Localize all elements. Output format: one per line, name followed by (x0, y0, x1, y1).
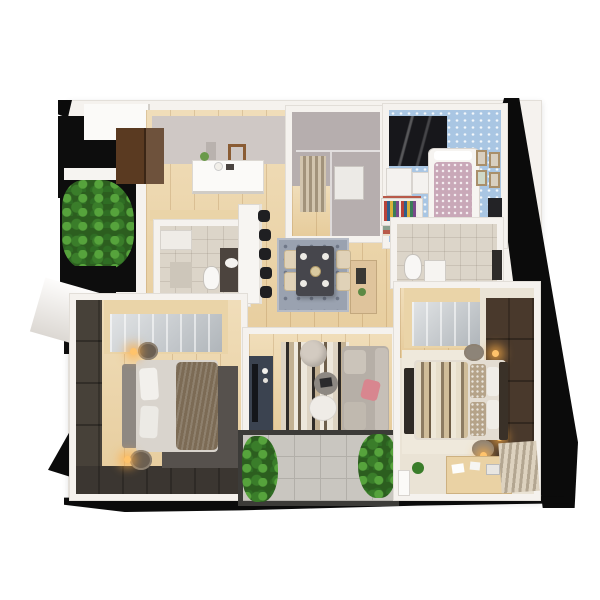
gallery-frame-3 (476, 170, 487, 186)
bedroom2-lamp-1 (130, 348, 137, 355)
side-console-decor (356, 268, 366, 284)
floor-plan-render (0, 0, 600, 600)
tv-cabinet-cup-1 (262, 368, 268, 374)
bathroom2-window (492, 250, 502, 280)
desk-paper-2 (470, 461, 481, 470)
master-wardrobe-glass (412, 302, 480, 346)
table-centerpiece (310, 266, 321, 277)
dining-chair-3 (336, 250, 351, 269)
gallery-frame-2 (489, 152, 500, 168)
bedroom2-lamp-2 (124, 456, 131, 463)
bar-stool-2 (259, 229, 271, 241)
bar-stool-1 (258, 210, 270, 222)
desk-laptop (486, 464, 500, 475)
master-duvet (416, 362, 468, 438)
console-vase (214, 162, 223, 171)
sofa-cushion-2 (344, 402, 366, 430)
desk-paper-1 (451, 463, 464, 474)
master-nightstand-1 (464, 344, 484, 361)
tv-cabinet-cup-2 (263, 378, 268, 383)
bathroom1-shelf (160, 230, 192, 250)
balcony-plant-right (358, 434, 396, 498)
glass-partition-h (296, 150, 380, 152)
master-pillow-white-1 (487, 367, 499, 396)
bedroom2-nightstand-1 (138, 342, 158, 360)
bar-stool-4 (260, 267, 272, 279)
vanity-2 (424, 260, 446, 284)
bar-stool-5 (260, 286, 272, 298)
bedroom2-pillow-1 (139, 367, 159, 400)
hedge-plant (62, 180, 134, 270)
side-console-plant (358, 288, 366, 296)
sofa-cushion-1 (344, 350, 366, 374)
towel-stack (334, 166, 364, 200)
bedroom2-pillow-2 (139, 406, 159, 439)
pouf (300, 340, 327, 367)
bedroom2-bottom-wall (76, 466, 241, 494)
master-headboard (499, 362, 508, 440)
entrance-door (116, 128, 164, 184)
vanity-1-basin (225, 258, 238, 268)
place-setting-2 (322, 253, 329, 260)
hanging-towels (300, 156, 326, 212)
place-setting-3 (300, 280, 307, 287)
place-setting-4 (322, 280, 329, 287)
coffee-table-1-tray (319, 377, 332, 388)
master-pillow-pattern-1 (470, 364, 486, 398)
bedroom2-left-wall (76, 300, 102, 494)
bar-stool-3 (259, 248, 271, 260)
toilet-1 (203, 266, 220, 290)
master-plant (412, 462, 424, 474)
bedroom2-nightstand-2 (130, 450, 152, 470)
master-curtain (498, 441, 539, 494)
console-decor-box (226, 164, 234, 170)
console-plant (200, 152, 209, 161)
master-pillow-white-2 (487, 400, 499, 429)
toilet-2 (404, 254, 422, 280)
gallery-frame-4 (489, 172, 500, 188)
kids-dresser (386, 168, 412, 196)
master-pillow-pattern-2 (470, 402, 486, 436)
dining-chair-4 (336, 272, 351, 291)
master-wall-lamp-1 (492, 350, 499, 357)
master-door (398, 470, 410, 496)
glass-partition-v (330, 152, 332, 236)
kids-bed-pillow (434, 151, 472, 160)
tv-panel (252, 364, 258, 422)
place-setting-1 (300, 253, 307, 260)
balcony-plant-left (242, 436, 278, 502)
coffee-table-2 (309, 395, 337, 421)
entry-wall-face (152, 116, 286, 164)
bedroom2-wardrobe-glass (110, 314, 222, 352)
gallery-frame-1 (476, 150, 487, 166)
bath-mat (170, 262, 192, 288)
fur-throw (176, 362, 218, 450)
